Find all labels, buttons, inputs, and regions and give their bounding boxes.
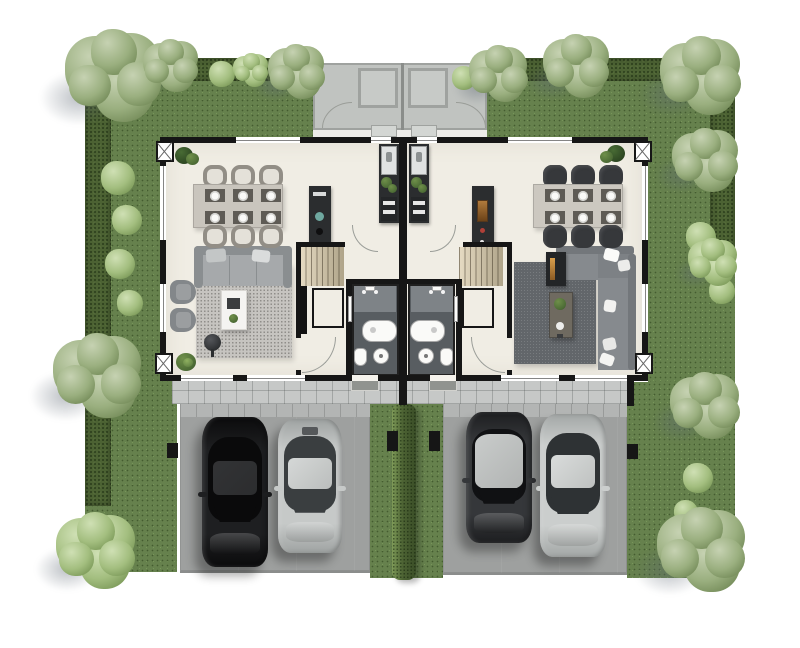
bush (105, 249, 135, 279)
bush (112, 205, 142, 235)
tree (270, 65, 295, 90)
tree (546, 58, 575, 87)
tree (69, 65, 111, 107)
tree (690, 256, 712, 278)
tree (59, 542, 93, 576)
floor-plan-stage (0, 0, 800, 648)
tree (99, 540, 135, 576)
trees-layer (0, 0, 800, 648)
tree (299, 64, 325, 90)
bush (683, 463, 713, 493)
tree (708, 396, 740, 428)
bush (117, 290, 143, 316)
tree (705, 538, 745, 578)
tree (471, 67, 497, 93)
tree (663, 66, 698, 101)
tree (708, 151, 738, 181)
tree (715, 255, 738, 278)
tree (675, 152, 704, 181)
tree (661, 539, 699, 577)
bush (209, 61, 235, 87)
tree (101, 364, 141, 404)
tree (579, 57, 609, 87)
bush (101, 161, 135, 195)
tree (673, 398, 703, 428)
tree (57, 365, 95, 403)
tree (501, 66, 528, 93)
tree (173, 58, 198, 83)
tree (235, 66, 250, 81)
tree (704, 65, 741, 102)
